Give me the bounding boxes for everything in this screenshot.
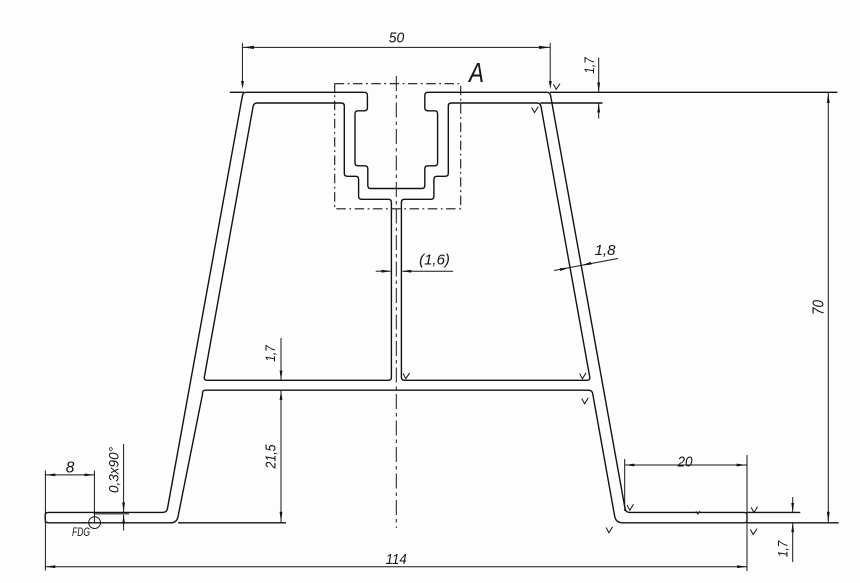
- svg-text:20: 20: [677, 453, 693, 470]
- svg-text:(1,6): (1,6): [419, 252, 450, 269]
- svg-text:FDG: FDG: [72, 525, 90, 539]
- svg-text:8: 8: [66, 459, 75, 476]
- svg-text:1,7: 1,7: [262, 344, 278, 362]
- svg-text:1,7: 1,7: [775, 540, 791, 558]
- svg-text:50: 50: [389, 29, 405, 46]
- svg-text:21,5: 21,5: [264, 444, 280, 470]
- svg-text:70: 70: [811, 300, 828, 315]
- svg-text:114: 114: [386, 551, 407, 568]
- svg-text:1,8: 1,8: [595, 242, 617, 259]
- svg-text:1,7: 1,7: [581, 56, 597, 74]
- svg-text:A: A: [467, 57, 484, 88]
- svg-text:0,3x90°: 0,3x90°: [106, 447, 122, 493]
